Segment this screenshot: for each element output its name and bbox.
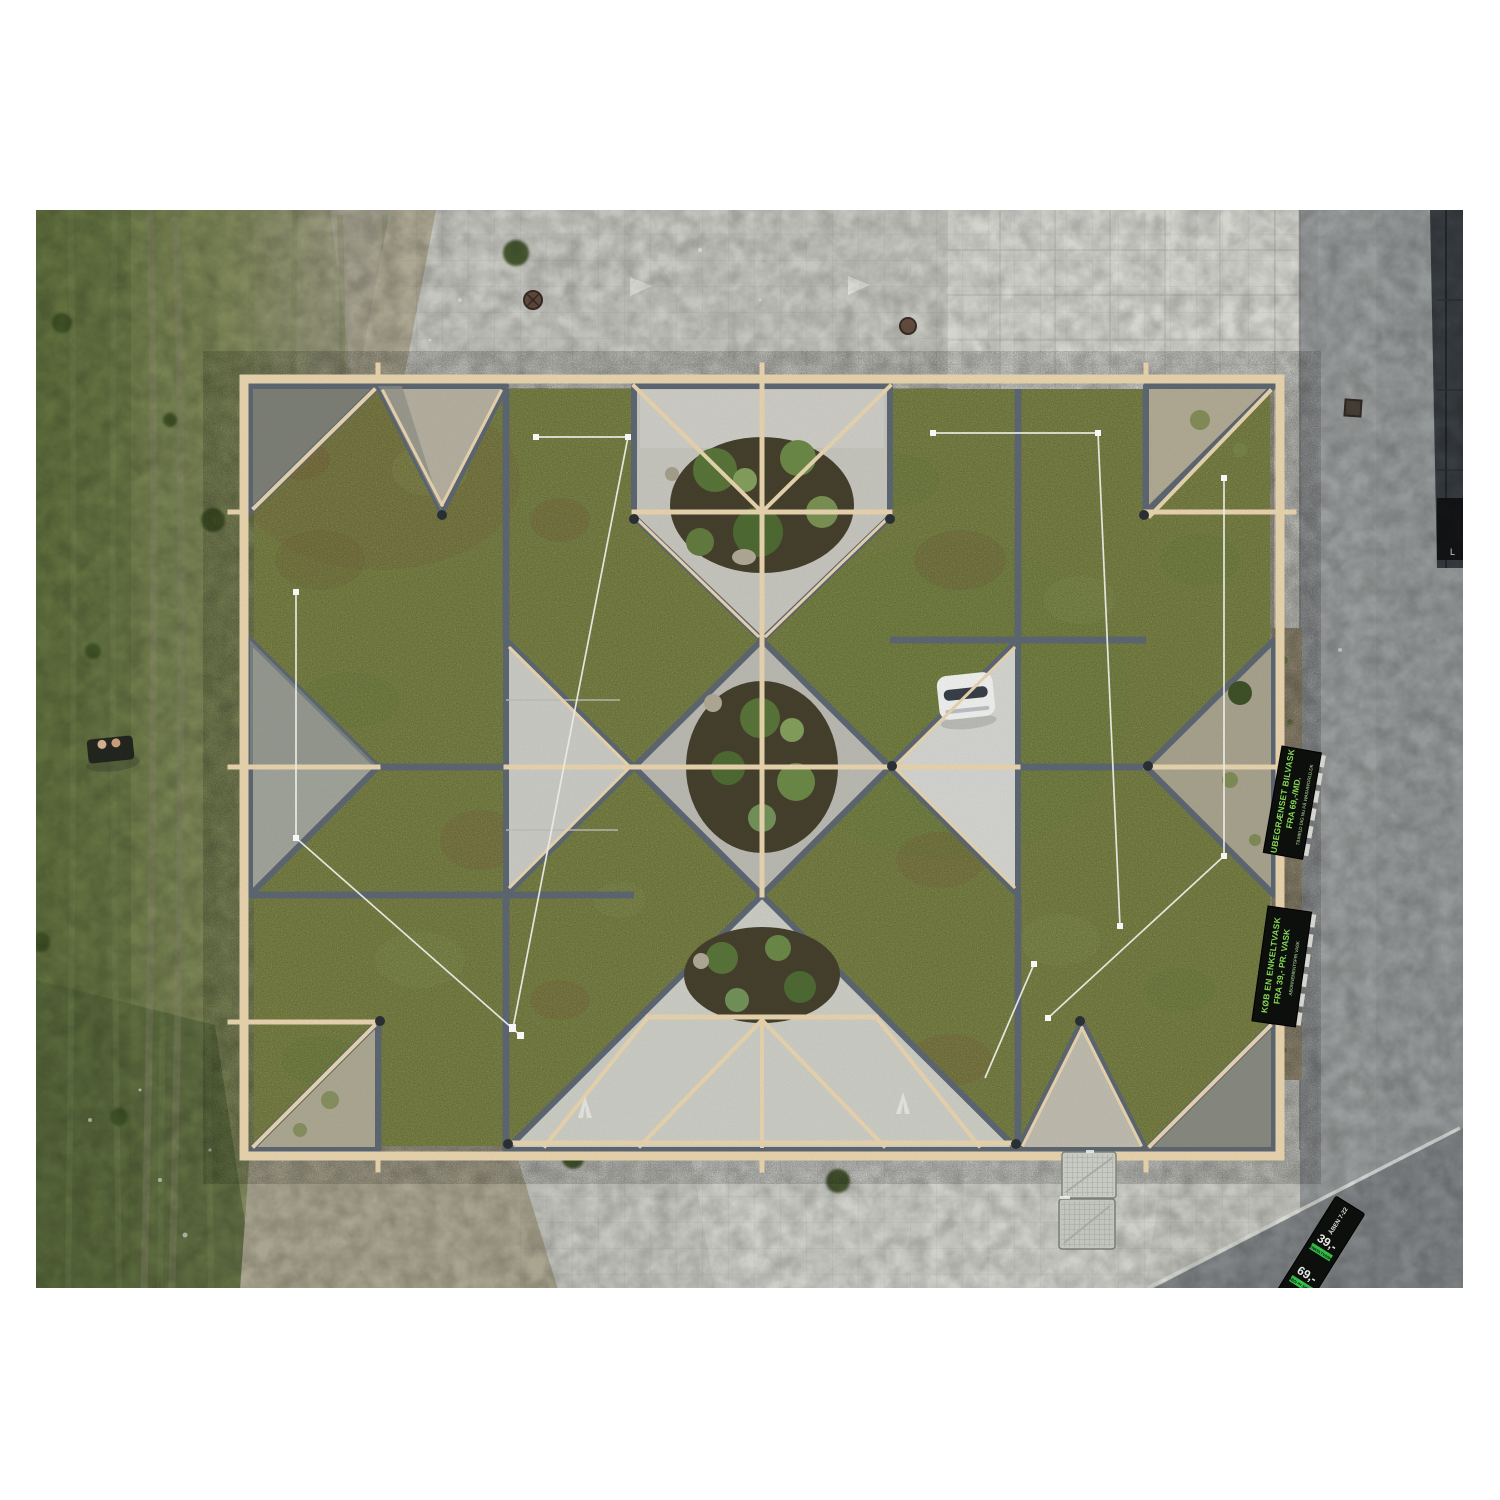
photo-frame: L (0, 0, 1500, 1500)
photo-grain (36, 210, 1463, 1288)
aerial-photo: L (0, 0, 1500, 1500)
